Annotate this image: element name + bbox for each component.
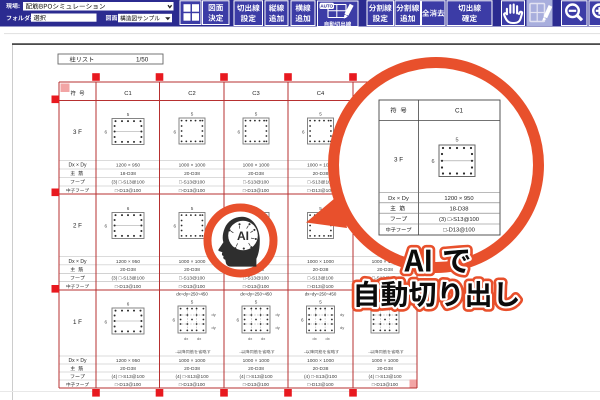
svg-text:dy: dy	[276, 325, 280, 330]
svg-text:20-D38: 20-D38	[120, 366, 136, 372]
svg-text:Dx × Dy: Dx × Dy	[69, 163, 87, 169]
svg-text:20-D38: 20-D38	[377, 366, 393, 372]
svg-text:(4) □-S13@100: (4) □-S13@100	[239, 374, 272, 380]
svg-text:Dx × Dy: Dx × Dy	[388, 196, 409, 202]
svg-text:1200 × 950: 1200 × 950	[116, 259, 140, 265]
svg-text:6: 6	[173, 224, 176, 229]
svg-text:1000 × 1000: 1000 × 1000	[307, 259, 334, 265]
svg-text:dx=dy=250~450: dx=dy=250~450	[305, 292, 337, 297]
svg-text:dx: dx	[197, 336, 201, 341]
svg-text:20-D38: 20-D38	[184, 171, 200, 177]
svg-text:6: 6	[127, 206, 130, 211]
svg-text:6: 6	[302, 130, 305, 135]
svg-text:1000 × 1000: 1000 × 1000	[307, 358, 334, 364]
svg-text:□-D13@100: □-D13@100	[115, 188, 141, 194]
svg-text:20-D38: 20-D38	[120, 267, 136, 273]
svg-text:(4) □-S13@100: (4) □-S13@100	[111, 374, 144, 380]
svg-text:dy: dy	[212, 325, 216, 330]
svg-text:dy: dy	[340, 325, 344, 330]
svg-text:dx: dx	[313, 336, 317, 341]
svg-text:1 F: 1 F	[73, 319, 82, 326]
svg-text:□-D13@100: □-D13@100	[115, 284, 141, 290]
svg-text:(4) □-S13@100: (4) □-S13@100	[304, 374, 337, 380]
svg-text:20-D38: 20-D38	[313, 366, 329, 372]
svg-text:5: 5	[319, 111, 322, 116]
svg-text:dx: dx	[261, 336, 265, 341]
svg-text:□-D13@100: □-D13@100	[307, 382, 333, 388]
svg-text:□-D13@100: □-D13@100	[307, 188, 333, 194]
svg-text:□-S13@100: □-S13@100	[179, 276, 205, 282]
svg-text:C1: C1	[455, 108, 464, 115]
svg-text:□-D13@100: □-D13@100	[179, 284, 205, 290]
svg-text:6: 6	[104, 130, 107, 135]
svg-text:□-S13@100: □-S13@100	[243, 180, 269, 186]
svg-text:1/50: 1/50	[136, 57, 149, 64]
svg-text:20-D38: 20-D38	[313, 267, 329, 273]
svg-text:5: 5	[455, 138, 458, 144]
svg-text:18-D38: 18-D38	[120, 171, 136, 177]
svg-text:□-D13@100: □-D13@100	[443, 228, 475, 234]
svg-text:6: 6	[173, 130, 176, 135]
svg-text:1000 × 1000: 1000 × 1000	[179, 259, 206, 265]
svg-text:□-D13@100: □-D13@100	[179, 188, 205, 194]
svg-text:6: 6	[127, 301, 130, 306]
svg-text:6: 6	[172, 318, 175, 323]
svg-text:Dx × Dy: Dx × Dy	[69, 259, 87, 265]
svg-text:(3) □-S13@100: (3) □-S13@100	[111, 276, 144, 282]
svg-text:20-D38: 20-D38	[248, 366, 264, 372]
svg-text:6: 6	[236, 318, 239, 323]
svg-text:5: 5	[319, 300, 322, 305]
svg-text:□-D13@100: □-D13@100	[243, 382, 269, 388]
svg-text:20-D38: 20-D38	[313, 171, 329, 177]
svg-text:dx: dx	[326, 336, 330, 341]
svg-text:5: 5	[127, 112, 130, 117]
svg-text:6: 6	[431, 159, 434, 165]
svg-text:6: 6	[301, 318, 304, 323]
svg-text:3 F: 3 F	[394, 157, 403, 164]
svg-text:(3) □-S13@100: (3) □-S13@100	[439, 217, 479, 223]
svg-text:2 F: 2 F	[73, 223, 82, 230]
svg-text:AUTO: AUTO	[320, 4, 333, 9]
svg-text:C2: C2	[188, 91, 195, 97]
svg-text:6: 6	[104, 320, 107, 325]
svg-text:1200 × 950: 1200 × 950	[116, 163, 140, 169]
svg-text:1000 × 1000: 1000 × 1000	[179, 358, 206, 364]
svg-text:1200 × 950: 1200 × 950	[444, 196, 473, 202]
svg-text:□-D13@100: □-D13@100	[179, 382, 205, 388]
svg-text:dy: dy	[212, 312, 216, 317]
svg-text:dy: dy	[340, 312, 344, 317]
svg-text:5: 5	[191, 206, 194, 211]
svg-text:□-S13@100: □-S13@100	[308, 276, 334, 282]
svg-text:C1: C1	[124, 91, 131, 97]
svg-text:(4) □-S13@100: (4) □-S13@100	[368, 374, 401, 380]
svg-text:1000 × 1000: 1000 × 1000	[179, 163, 206, 169]
svg-text:1000 × 1000: 1000 × 1000	[372, 358, 399, 364]
svg-text:20-D38: 20-D38	[377, 267, 393, 273]
svg-text:□-D13@100: □-D13@100	[307, 284, 333, 290]
svg-text:C4: C4	[317, 91, 325, 97]
svg-text:(4) □-S13@100: (4) □-S13@100	[175, 374, 208, 380]
svg-text:□-D13@100: □-D13@100	[243, 284, 269, 290]
svg-text:dx=dy=250~450: dx=dy=250~450	[176, 292, 208, 297]
svg-text:dx: dx	[184, 336, 188, 341]
svg-text:□-D13@100: □-D13@100	[372, 382, 398, 388]
svg-text:3 F: 3 F	[73, 129, 82, 136]
svg-text:C3: C3	[252, 91, 259, 97]
svg-text:5: 5	[191, 111, 194, 116]
svg-text:1200 × 950: 1200 × 950	[116, 358, 140, 364]
svg-text:1000 × 1000: 1000 × 1000	[243, 163, 270, 169]
svg-text:dx: dx	[248, 336, 252, 341]
svg-text:□-S13@100: □-S13@100	[179, 180, 205, 186]
svg-text:5: 5	[191, 300, 194, 305]
svg-text:□-D13@100: □-D13@100	[115, 382, 141, 388]
svg-text:Dx × Dy: Dx × Dy	[69, 358, 87, 364]
svg-text:1000 × 1000: 1000 × 1000	[243, 358, 270, 364]
svg-text:5: 5	[255, 300, 258, 305]
svg-text:6: 6	[104, 224, 107, 229]
svg-text:dy: dy	[276, 312, 280, 317]
svg-text:5: 5	[255, 111, 258, 116]
svg-text:6: 6	[237, 130, 240, 135]
svg-text:20-D38: 20-D38	[248, 171, 264, 177]
svg-text:20-D38: 20-D38	[184, 366, 200, 372]
svg-text:dx=dy=250~450: dx=dy=250~450	[240, 292, 272, 297]
svg-text:18-D38: 18-D38	[449, 206, 468, 212]
svg-text:(3) □-S13@100: (3) □-S13@100	[111, 180, 144, 186]
svg-text:□-D13@100: □-D13@100	[243, 188, 269, 194]
svg-text:20-D38: 20-D38	[184, 267, 200, 273]
svg-text:AI: AI	[237, 229, 249, 243]
